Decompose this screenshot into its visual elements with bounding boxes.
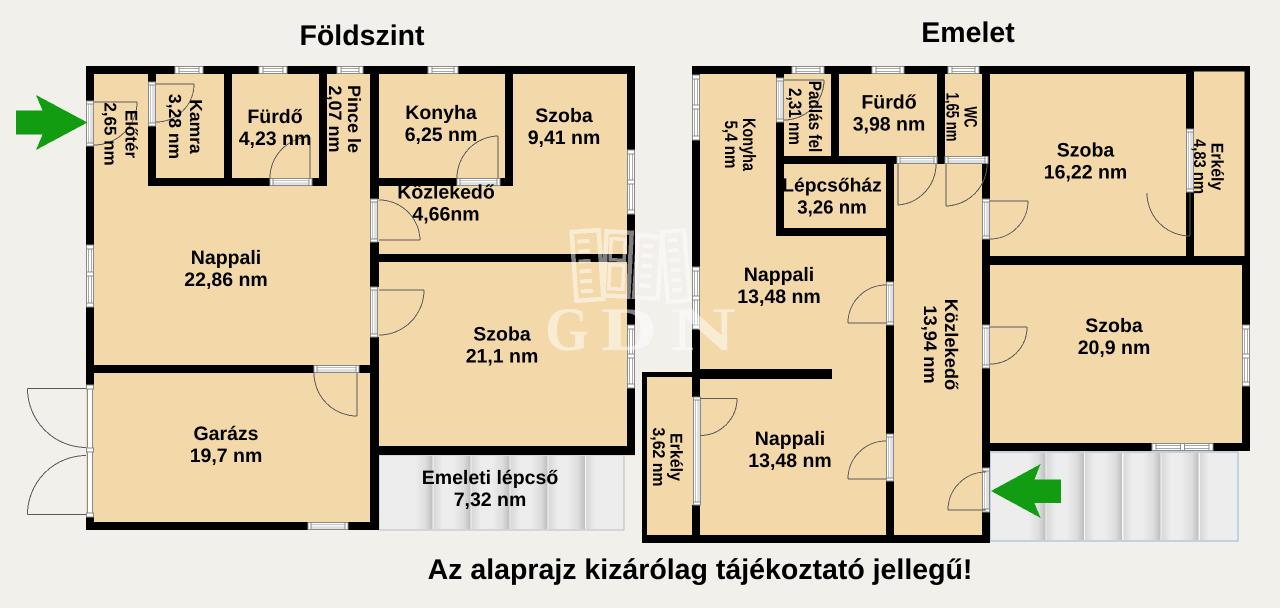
- svg-text:2,07 nm: 2,07 nm: [325, 85, 345, 152]
- svg-text:9,41 nm: 9,41 nm: [528, 127, 601, 149]
- svg-text:Szoba: Szoba: [473, 324, 531, 346]
- svg-text:20,9 nm: 20,9 nm: [1078, 337, 1151, 359]
- svg-text:Az alaprajz kizárólag tájékozt: Az alaprajz kizárólag tájékoztató jelleg…: [428, 554, 973, 586]
- svg-text:G: G: [545, 296, 589, 364]
- svg-text:Erkély: Erkély: [667, 433, 686, 482]
- svg-text:4,66nm: 4,66nm: [412, 204, 479, 226]
- svg-text:Emelet: Emelet: [921, 17, 1015, 49]
- svg-text:13,94 nm: 13,94 nm: [920, 305, 941, 383]
- svg-text:Konyha: Konyha: [405, 102, 477, 124]
- svg-text:Fürdő: Fürdő: [861, 92, 916, 114]
- svg-text:Szoba: Szoba: [1057, 140, 1115, 162]
- svg-text:5,4 nm: 5,4 nm: [721, 121, 741, 169]
- svg-text:16,22 nm: 16,22 nm: [1044, 162, 1127, 184]
- svg-text:4,83 nm: 4,83 nm: [1190, 139, 1209, 194]
- svg-text:13,48 nm: 13,48 nm: [748, 450, 831, 472]
- svg-text:Lépcsőház: Lépcsőház: [782, 175, 881, 196]
- svg-text:2,65 nm: 2,65 nm: [100, 102, 119, 165]
- svg-text:Szoba: Szoba: [535, 105, 593, 127]
- svg-text:3,62 nm: 3,62 nm: [649, 428, 668, 487]
- svg-text:Konyha: Konyha: [739, 118, 759, 172]
- svg-text:3,28 nm: 3,28 nm: [165, 94, 185, 159]
- svg-text:Nappali: Nappali: [191, 247, 261, 269]
- svg-text:4,23 nm: 4,23 nm: [239, 128, 312, 150]
- svg-text:1,65 nm: 1,65 nm: [943, 93, 963, 142]
- svg-text:7,32 nm: 7,32 nm: [454, 489, 527, 511]
- svg-text:21,1 nm: 21,1 nm: [466, 346, 539, 368]
- svg-text:Pince le: Pince le: [344, 85, 364, 153]
- svg-text:Fürdő: Fürdő: [247, 106, 302, 128]
- svg-text:Erkély: Erkély: [1208, 143, 1227, 191]
- svg-text:N: N: [670, 296, 736, 364]
- svg-text:19,7 nm: 19,7 nm: [190, 445, 263, 467]
- svg-text:Emeleti lépcső: Emeleti lépcső: [422, 467, 559, 489]
- svg-text:Kamra: Kamra: [186, 99, 206, 154]
- svg-text:13,48 nm: 13,48 nm: [737, 286, 820, 308]
- svg-text:3,98 nm: 3,98 nm: [853, 114, 926, 136]
- svg-text:Közlekedő: Közlekedő: [397, 182, 495, 204]
- svg-text:3,26 nm: 3,26 nm: [797, 197, 867, 218]
- svg-text:Földszint: Földszint: [299, 20, 425, 52]
- svg-text:D: D: [601, 296, 657, 364]
- svg-text:Közlekedő: Közlekedő: [941, 299, 962, 390]
- svg-text:WC: WC: [961, 107, 981, 128]
- svg-text:Padlás fel: Padlás fel: [805, 81, 825, 153]
- svg-text:Szoba: Szoba: [1085, 315, 1143, 337]
- svg-text:22,86 nm: 22,86 nm: [184, 269, 267, 291]
- svg-text:Előtér: Előtér: [121, 110, 140, 159]
- svg-text:2,31 nm: 2,31 nm: [785, 88, 805, 145]
- svg-text:6,25 nm: 6,25 nm: [405, 124, 478, 146]
- svg-text:Garázs: Garázs: [193, 423, 258, 445]
- svg-text:Nappali: Nappali: [744, 264, 814, 286]
- svg-text:Nappali: Nappali: [755, 428, 825, 450]
